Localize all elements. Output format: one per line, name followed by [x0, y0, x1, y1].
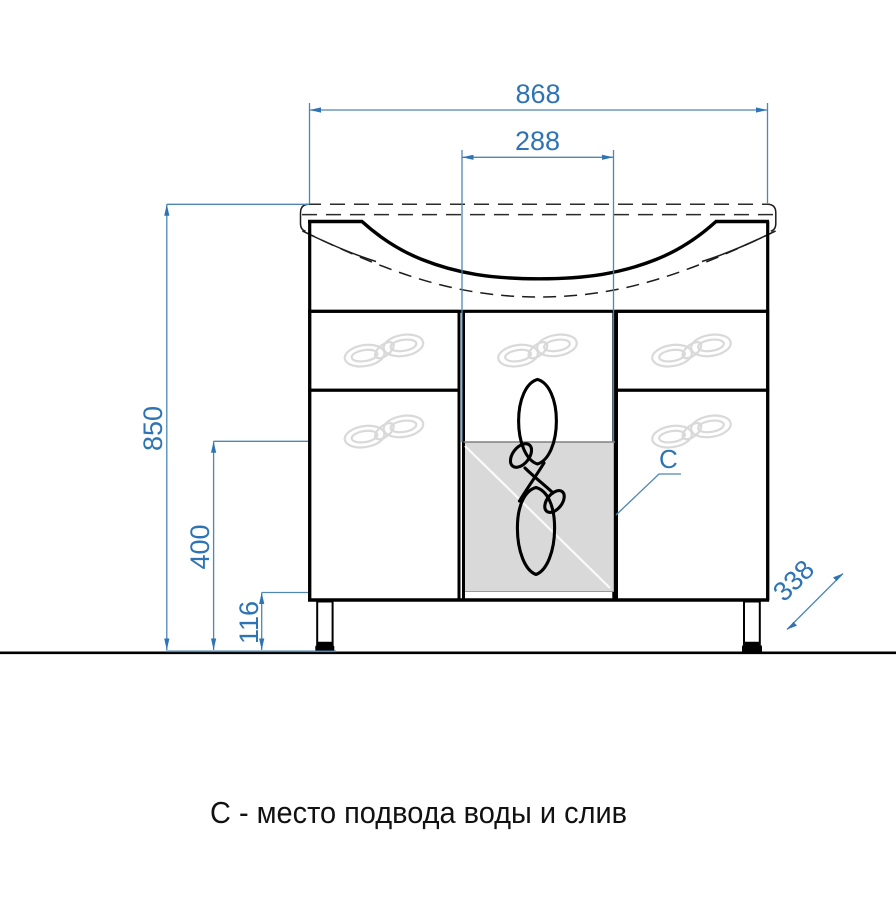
svg-text:116: 116 — [234, 601, 264, 644]
svg-text:400: 400 — [185, 524, 215, 569]
svg-text:868: 868 — [515, 79, 560, 109]
svg-text:850: 850 — [138, 406, 168, 451]
svg-text:288: 288 — [515, 126, 560, 156]
svg-text:С - место подвода воды и слив: С - место подвода воды и слив — [210, 795, 627, 830]
